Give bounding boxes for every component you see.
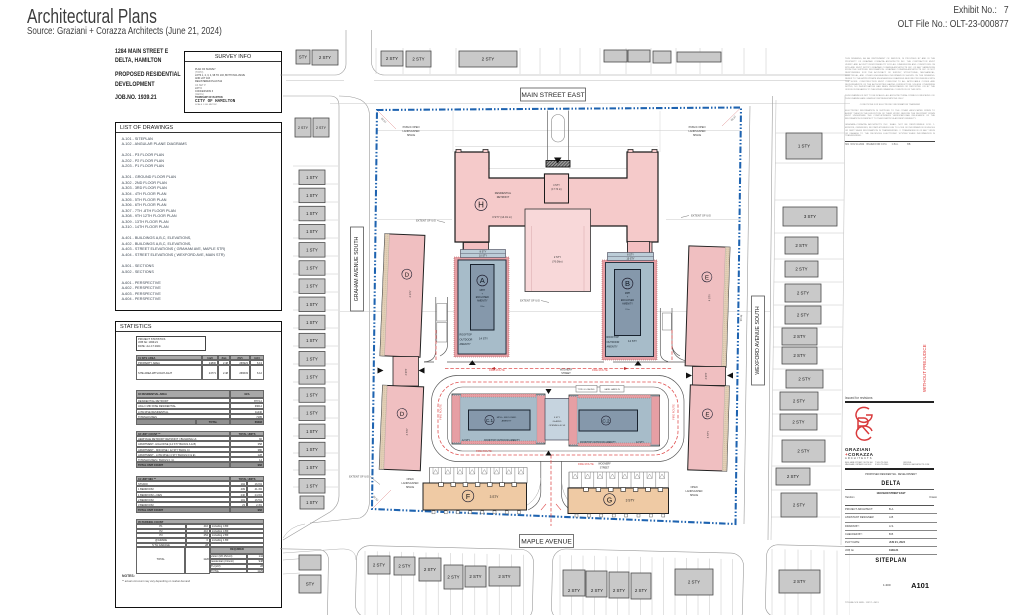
svg-text:1 STY: 1 STY	[306, 393, 318, 398]
svg-text:LANDSCAPED: LANDSCAPED	[689, 130, 706, 133]
svg-text:STREET: STREET	[600, 466, 610, 469]
svg-text:GRAHAM AVENUE SOUTH: GRAHAM AVENUE SOUTH	[354, 237, 360, 302]
svg-text:FIRE ROUTE: FIRE ROUTE	[439, 404, 443, 420]
svg-text:FIRE ROUTE: FIRE ROUTE	[578, 462, 594, 466]
svg-text:3 STY: 3 STY	[490, 495, 500, 499]
svg-text:GLAZED: GLAZED	[553, 420, 562, 423]
svg-text:1 STY: 1 STY	[306, 356, 318, 361]
svg-text:2 STY: 2 STY	[793, 399, 805, 404]
svg-text:PUBLIC OPEN: PUBLIC OPEN	[689, 126, 706, 129]
svg-text:2 STY: 2 STY	[613, 588, 625, 593]
svg-text:SPACE: SPACE	[690, 494, 699, 497]
svg-text:14 STY: 14 STY	[628, 339, 637, 343]
svg-text:14 STY: 14 STY	[479, 337, 488, 341]
svg-text:1 STY: 1 STY	[306, 500, 318, 505]
svg-text:2 STY: 2 STY	[787, 474, 799, 479]
svg-text:RESIDENTIAL: RESIDENTIAL	[495, 192, 512, 195]
svg-text:WOONERF: WOONERF	[598, 463, 611, 466]
svg-text:EXTENT OF U/G: EXTENT OF U/G	[520, 299, 540, 303]
svg-text:ENCLOSED: ENCLOSED	[621, 299, 634, 302]
svg-text:AMENITY: AMENITY	[460, 343, 471, 346]
svg-text:2 STY: 2 STY	[797, 291, 809, 296]
svg-text:1 STY: 1 STY	[306, 320, 318, 325]
svg-text:SPACE: SPACE	[406, 486, 415, 489]
svg-text:4 STY: 4 STY	[705, 372, 708, 379]
svg-text:STY: STY	[306, 582, 315, 587]
svg-text:1 STY: 1 STY	[306, 429, 318, 434]
svg-text:GARB. HANDLIN: GARB. HANDLIN	[604, 388, 620, 391]
svg-text:MAIN STREET EAST: MAIN STREET EAST	[521, 92, 584, 99]
svg-text:EXTENT OF U/G: EXTENT OF U/G	[349, 475, 369, 479]
svg-text:150m: 150m	[625, 309, 630, 311]
svg-text:(76.06m): (76.06m)	[552, 260, 563, 264]
svg-text:LANDSCAPED: LANDSCAPED	[403, 130, 420, 133]
svg-text:82.52: 82.52	[372, 495, 380, 503]
svg-text:1 STY: 1 STY	[306, 266, 318, 271]
svg-text:2 STY: 2 STY	[298, 126, 309, 130]
svg-text:1 STY: 1 STY	[306, 284, 318, 289]
svg-text:STREET: STREET	[561, 372, 571, 375]
svg-text:(17.74 m): (17.74 m)	[551, 188, 561, 191]
svg-text:OPEN: OPEN	[690, 486, 697, 489]
svg-text:MAPLE AVENUE: MAPLE AVENUE	[521, 538, 572, 545]
svg-text:C.2: C.2	[602, 419, 610, 424]
svg-text:1 STY: 1 STY	[306, 229, 318, 234]
svg-text:90.36: 90.36	[739, 314, 743, 321]
svg-text:C.1: C.1	[486, 418, 494, 423]
svg-text:ROOFTOP: ROOFTOP	[607, 336, 620, 339]
svg-text:LANDSCAPED: LANDSCAPED	[686, 490, 703, 493]
svg-text:E: E	[705, 412, 709, 418]
svg-text:2 STY: 2 STY	[554, 255, 561, 259]
svg-text:2 STY: 2 STY	[591, 588, 603, 593]
svg-text:3 STY (14.01 m): 3 STY (14.01 m)	[492, 215, 512, 219]
svg-text:12 STY: 12 STY	[636, 441, 644, 444]
svg-text:2 STY: 2 STY	[688, 580, 700, 585]
svg-text:2 STY: 2 STY	[386, 56, 398, 61]
svg-text:OUTDOOR: OUTDOOR	[460, 338, 473, 341]
svg-text:2 STY: 2 STY	[447, 575, 459, 580]
svg-text:B: B	[625, 279, 630, 288]
svg-text:2 STY: 2 STY	[424, 567, 436, 572]
svg-text:FIRE ROUTE: FIRE ROUTE	[672, 404, 676, 420]
svg-text:2 STY: 2 STY	[373, 563, 385, 568]
svg-text:1 STY: 1 STY	[306, 302, 318, 307]
svg-text:MPH + ENCLOSED: MPH + ENCLOSED	[497, 417, 517, 419]
svg-text:OPENING 40 SF: OPENING 40 SF	[549, 425, 566, 427]
svg-text:H: H	[478, 200, 484, 209]
svg-text:2 STY: 2 STY	[795, 243, 807, 248]
svg-text:1 STY: 1 STY	[306, 411, 318, 416]
svg-text:EXTENT OF U/G: EXTENT OF U/G	[416, 219, 436, 223]
svg-text:OUTDOOR: OUTDOOR	[607, 341, 620, 344]
svg-text:1 STY: 1 STY	[306, 193, 318, 198]
svg-text:4 STY: 4 STY	[408, 290, 412, 298]
svg-text:3 STY: 3 STY	[804, 214, 816, 219]
svg-text:2 STY: 2 STY	[797, 449, 809, 454]
svg-text:12 STY: 12 STY	[462, 439, 470, 442]
svg-text:AMENITY: AMENITY	[622, 303, 633, 306]
svg-text:WEXFORD AVENUE SOUTH: WEXFORD AVENUE SOUTH	[755, 306, 761, 374]
svg-text:PUBLIC OPEN: PUBLIC OPEN	[403, 126, 420, 129]
svg-text:2 STY: 2 STY	[793, 334, 805, 339]
svg-text:2 STY: 2 STY	[319, 55, 331, 60]
svg-text:1 STY: 1 STY	[306, 447, 318, 452]
svg-text:8 STY: 8 STY	[627, 254, 634, 257]
svg-text:2 STY: 2 STY	[793, 579, 805, 584]
svg-text:2 STY: 2 STY	[798, 377, 810, 382]
svg-text:2 STY: 2 STY	[795, 267, 807, 272]
svg-text:10 STY: 10 STY	[627, 258, 635, 261]
svg-text:4 STY: 4 STY	[405, 428, 409, 436]
svg-text:96.37: 96.37	[730, 114, 738, 122]
svg-text:2 STY: 2 STY	[398, 564, 410, 569]
svg-text:EXTENT OF U/G: EXTENT OF U/G	[691, 214, 711, 218]
svg-text:2 STY: 2 STY	[316, 126, 327, 130]
svg-text:92.07: 92.07	[380, 117, 388, 125]
svg-text:1 STY: 1 STY	[798, 144, 810, 149]
svg-text:2 STY: 2 STY	[793, 503, 805, 508]
svg-text:AMENITY: AMENITY	[477, 300, 488, 303]
svg-text:RETROFIT: RETROFIT	[497, 196, 510, 199]
svg-text:1 STY: 1 STY	[306, 247, 318, 252]
svg-text:4 STY: 4 STY	[706, 431, 710, 439]
svg-text:ROOFTOP OUTDOOR AMENITY: ROOFTOP OUTDOOR AMENITY	[484, 439, 520, 442]
svg-text:AMENITY: AMENITY	[607, 346, 618, 349]
svg-text:2 STY: 2 STY	[635, 588, 647, 593]
svg-text:8 STY: 8 STY	[480, 251, 487, 254]
svg-text:150m: 150m	[480, 306, 485, 308]
svg-text:2 STY: 2 STY	[469, 574, 481, 579]
svg-text:2 STY: 2 STY	[797, 313, 809, 318]
svg-text:1 STY: 1 STY	[306, 465, 318, 470]
svg-text:2 STY: 2 STY	[793, 353, 805, 358]
svg-text:ENCLOSED: ENCLOSED	[476, 296, 489, 299]
svg-text:G: G	[607, 497, 612, 504]
svg-text:FIRE ROUTE: FIRE ROUTE	[592, 368, 608, 372]
svg-text:SPACE: SPACE	[693, 134, 702, 137]
svg-text:10 STY: 10 STY	[479, 255, 487, 258]
svg-text:1 STY: 1 STY	[306, 338, 318, 343]
svg-text:FIRE ROUTE: FIRE ROUTE	[476, 449, 492, 453]
svg-text:4 STY: 4 STY	[707, 294, 711, 302]
svg-text:1 STY: 1 STY	[306, 374, 318, 379]
svg-text:OPEN: OPEN	[406, 478, 413, 481]
svg-text:2 STY: 2 STY	[792, 420, 804, 425]
svg-text:4 STY: 4 STY	[405, 368, 408, 375]
svg-text:2 STY: 2 STY	[568, 588, 580, 593]
svg-text:1 STY: 1 STY	[306, 175, 318, 180]
svg-text:ROOFTOP OUTDOOR AMENITY: ROOFTOP OUTDOOR AMENITY	[580, 441, 616, 444]
svg-text:LANDSCAPED: LANDSCAPED	[402, 482, 419, 485]
svg-text:ROOFTOP: ROOFTOP	[460, 334, 473, 337]
svg-text:2 STY: 2 STY	[482, 57, 495, 62]
svg-text:3 STY: 3 STY	[626, 499, 636, 503]
svg-text:2 STY: 2 STY	[412, 57, 424, 62]
svg-text:SPACE: SPACE	[407, 134, 416, 137]
svg-text:6 STY: 6 STY	[554, 417, 561, 419]
svg-text:AMENITY: AMENITY	[502, 420, 512, 423]
svg-text:2 STY: 2 STY	[498, 574, 510, 579]
svg-text:1 STY: 1 STY	[306, 483, 318, 488]
svg-text:E: E	[705, 275, 709, 281]
svg-text:4 STY: 4 STY	[553, 184, 560, 187]
svg-text:F: F	[466, 494, 470, 501]
svg-text:STY: STY	[299, 55, 307, 60]
svg-text:1 STY: 1 STY	[306, 211, 318, 216]
svg-text:TYPE G LOADING: TYPE G LOADING	[578, 388, 595, 391]
svg-text:A: A	[480, 276, 485, 285]
